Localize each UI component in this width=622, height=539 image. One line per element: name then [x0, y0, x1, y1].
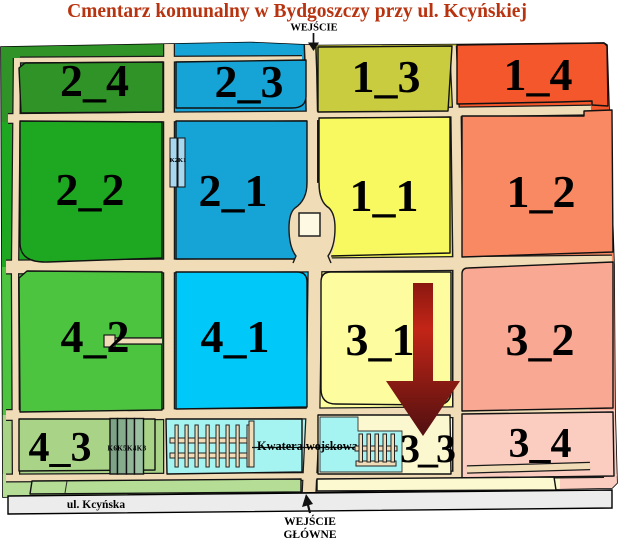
svg-text:GŁÓWNE: GŁÓWNE: [283, 527, 336, 539]
svg-text:3_4: 3_4: [509, 421, 572, 467]
svg-text:1_1: 1_1: [350, 170, 419, 221]
svg-text:WEJŚCIE: WEJŚCIE: [284, 514, 336, 528]
svg-text:K6K5K4K3: K6K5K4K3: [108, 445, 147, 453]
svg-text:3_2: 3_2: [506, 314, 575, 365]
svg-text:2_1: 2_1: [199, 165, 268, 216]
svg-text:Kwatera wojskowa: Kwatera wojskowa: [257, 439, 358, 453]
svg-text:1_3: 1_3: [352, 51, 421, 102]
svg-text:2_2: 2_2: [56, 164, 125, 215]
svg-text:Cmentarz komunalny w Bydgoszcz: Cmentarz komunalny w Bydgoszczy przy ul.…: [67, 1, 527, 22]
svg-text:2_3: 2_3: [215, 56, 284, 107]
svg-text:WEJŚCIE: WEJŚCIE: [290, 22, 337, 34]
svg-text:2_4: 2_4: [60, 55, 129, 106]
svg-text:3_1: 3_1: [346, 314, 415, 365]
svg-text:4_1: 4_1: [201, 311, 270, 362]
svg-text:4_3: 4_3: [29, 425, 92, 471]
svg-text:1_2: 1_2: [507, 166, 576, 217]
svg-text:4_2: 4_2: [61, 311, 130, 362]
svg-text:K2K1: K2K1: [170, 157, 187, 164]
svg-text:3_3: 3_3: [400, 426, 455, 471]
svg-text:ul. Kcyńska: ul. Kcyńska: [67, 499, 125, 511]
svg-text:1_4: 1_4: [504, 49, 573, 100]
